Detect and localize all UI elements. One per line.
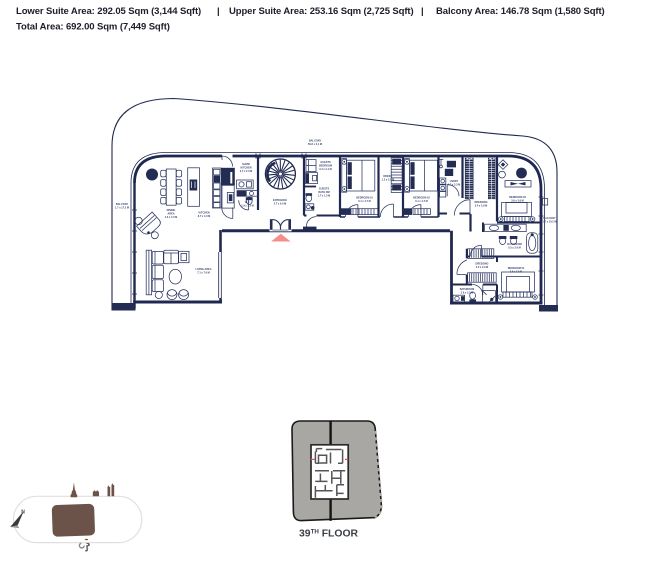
svg-text:Total Area: 692.00 Sqm (7,449: Total Area: 692.00 Sqm (7,449 Sqft) (16, 22, 170, 33)
svg-text:59.8 x 3.1 M: 59.8 x 3.1 M (308, 143, 322, 146)
svg-text:4.6 x 4.0 M: 4.6 x 4.0 M (165, 216, 178, 219)
svg-text:1.9 x 1.5 M: 1.9 x 1.5 M (241, 204, 254, 207)
svg-text:3.4 x 2.1 M: 3.4 x 2.1 M (319, 168, 332, 171)
svg-text:Lower Suite Area: 292.05 Sqm (: Lower Suite Area: 292.05 Sqm (3,144 Sqft… (16, 6, 201, 17)
svg-text:8.7 x 4.0 M: 8.7 x 4.0 M (198, 215, 211, 218)
svg-text:7.1 x 7.6 M: 7.1 x 7.6 M (197, 272, 210, 275)
svg-text:1.7 x 17.2 M: 1.7 x 17.2 M (115, 207, 129, 210)
svg-text:5.5 x 2.6 M: 5.5 x 2.6 M (508, 247, 521, 250)
svg-text:1.2 x 2.8 M: 1.2 x 2.8 M (382, 179, 395, 182)
svg-text:1.7 x 19.2 M: 1.7 x 19.2 M (543, 221, 557, 224)
svg-text:2.0 x 2.9 M: 2.0 x 2.9 M (476, 266, 489, 269)
svg-text:|: | (217, 6, 220, 17)
svg-text:Upper Suite Area: 253.16 Sqm (: Upper Suite Area: 253.16 Sqm (2,725 Sqft… (229, 6, 414, 17)
svg-text:39TH FLOOR: 39TH FLOOR (299, 528, 359, 539)
svg-text:Balcony Area: 146.78 Sqm (1,58: Balcony Area: 146.78 Sqm (1,580 Sqft) (436, 6, 605, 17)
svg-text:|: | (421, 6, 424, 17)
svg-text:6.1 x 4.7 M: 6.1 x 4.7 M (415, 200, 428, 203)
svg-text:3.7 x 2.0 M: 3.7 x 2.0 M (240, 170, 253, 173)
svg-text:6.1 x 4.7 M: 6.1 x 4.7 M (358, 200, 371, 203)
svg-text:3.6 x 3.6 M: 3.6 x 3.6 M (511, 199, 524, 202)
svg-text:2.7 x 6.0 M: 2.7 x 6.0 M (274, 203, 287, 206)
svg-text:N: N (21, 510, 25, 516)
svg-text:1.7 x 1.5 M: 1.7 x 1.5 M (318, 195, 331, 198)
svg-text:3.4 x 2.8 M: 3.4 x 2.8 M (475, 205, 488, 208)
